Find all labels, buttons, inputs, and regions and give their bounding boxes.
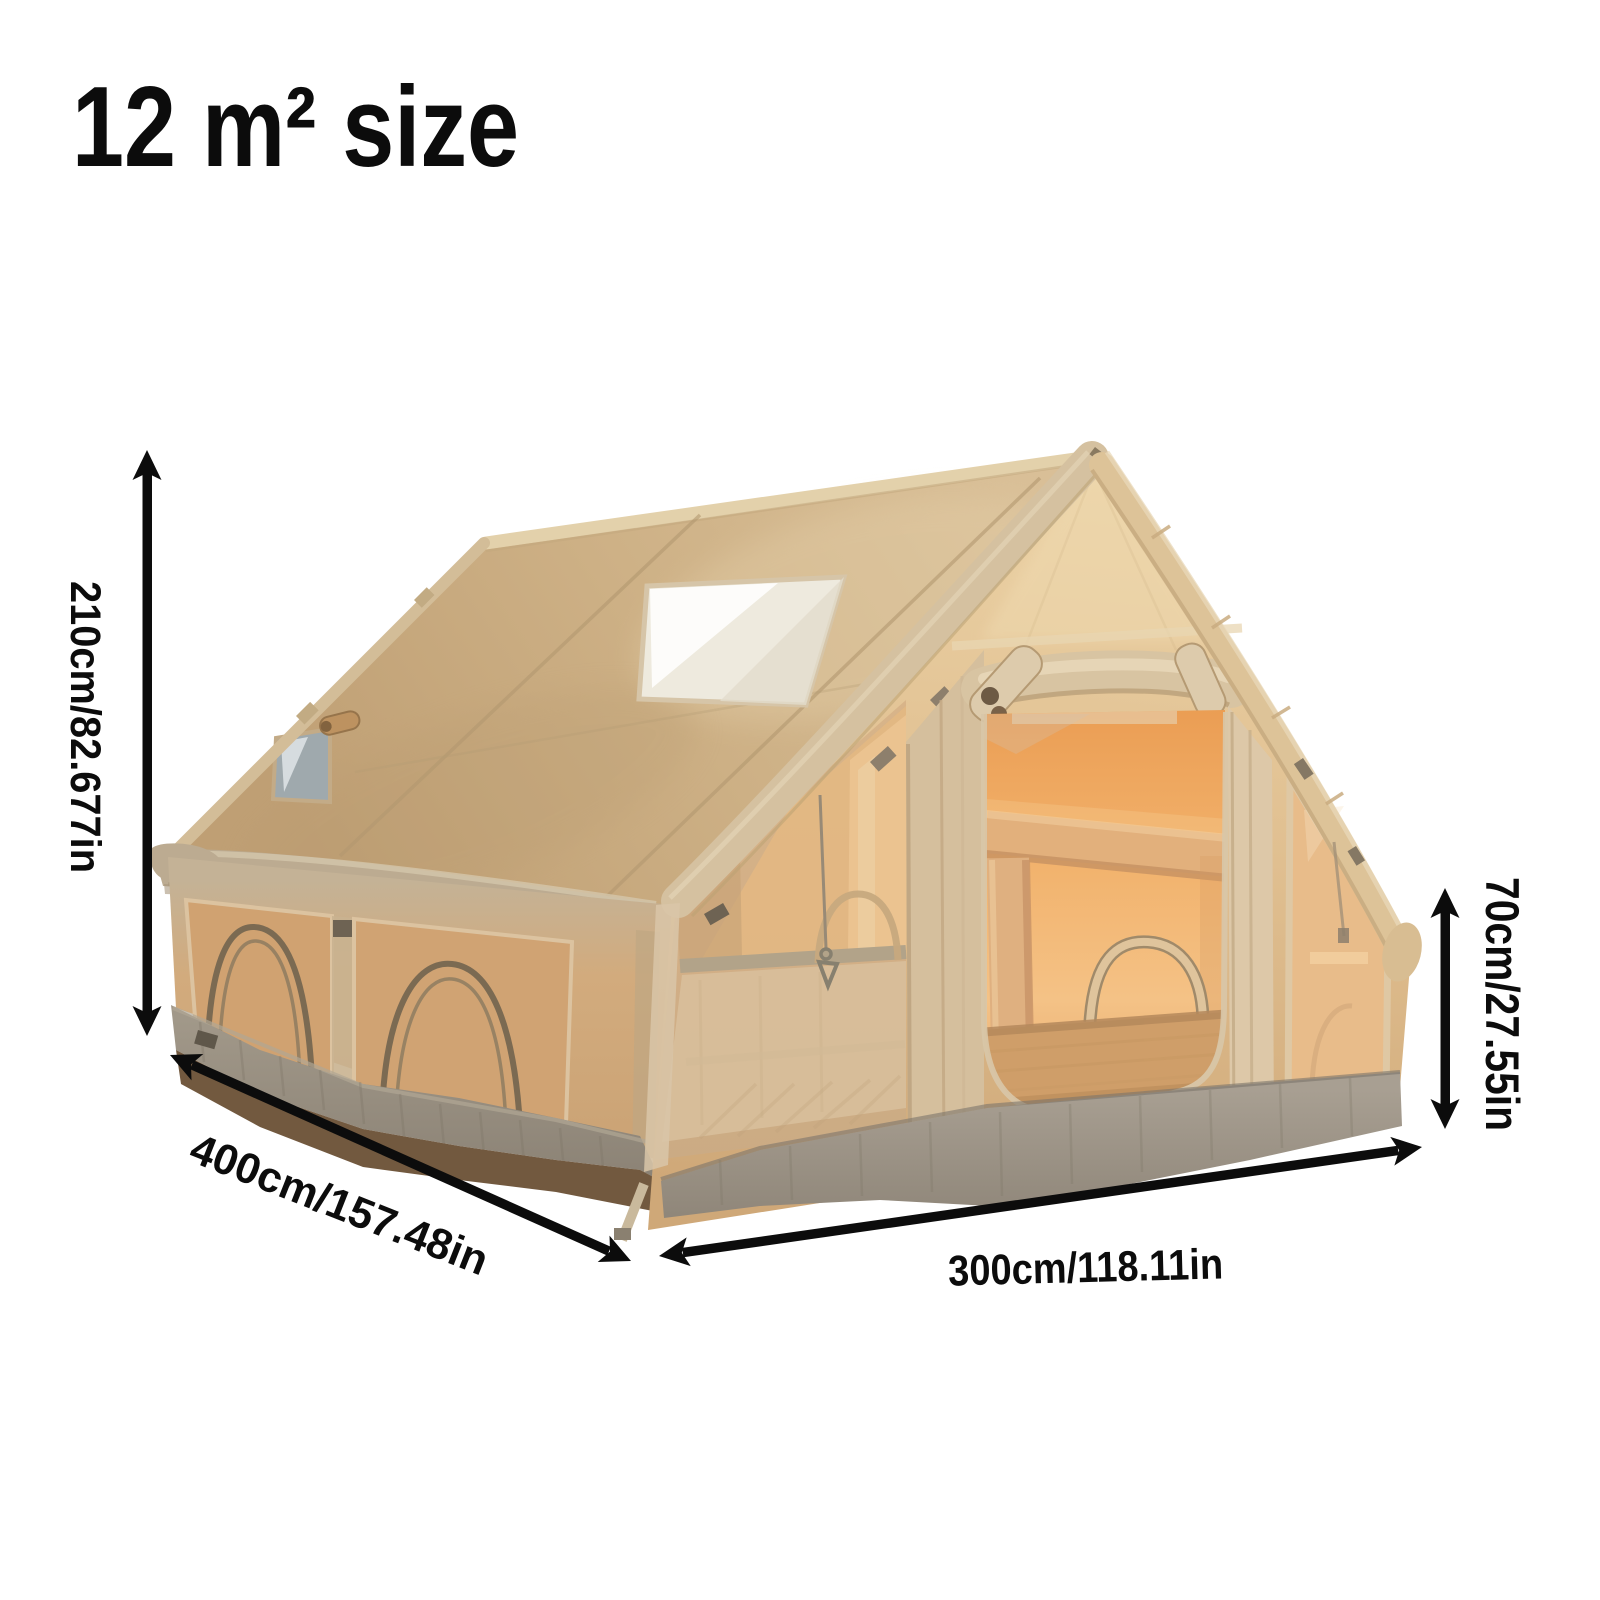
svg-text:210cm/82.677in: 210cm/82.677in — [61, 581, 109, 873]
svg-text:300cm/118.11in: 300cm/118.11in — [948, 1240, 1224, 1295]
svg-text:12 m² size: 12 m² size — [72, 64, 519, 191]
svg-text:70cm/27.55in: 70cm/27.55in — [1476, 877, 1529, 1131]
